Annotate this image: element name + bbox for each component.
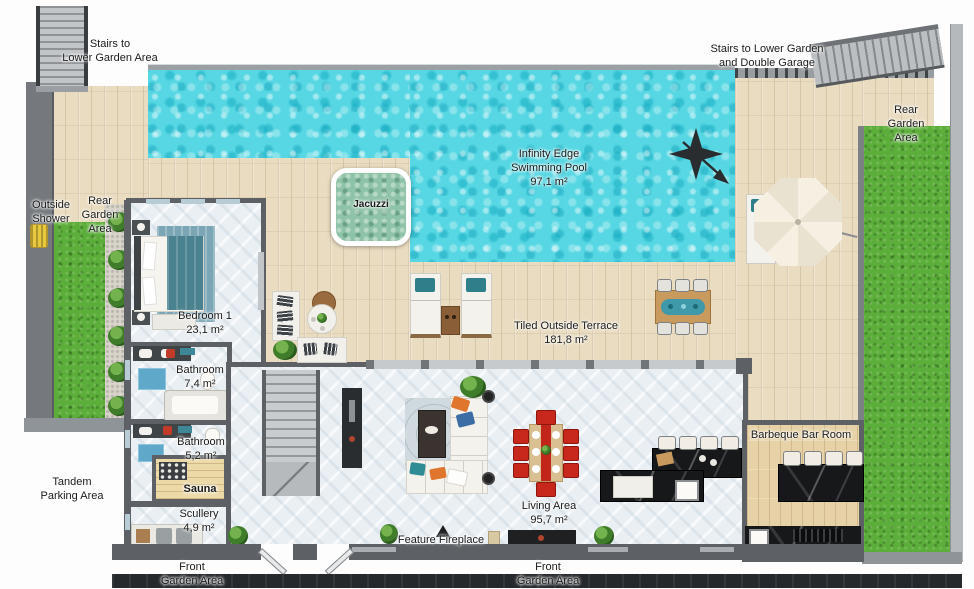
scullery-label: Scullery 4,9 m² (163, 508, 235, 536)
label-line: Rear (876, 104, 936, 118)
label-line: Rear (72, 195, 128, 209)
dish-icon (693, 304, 698, 309)
outdoor-chair (675, 279, 690, 292)
label-line: Parking Area (26, 490, 118, 504)
tray-icon (425, 426, 438, 434)
bedroom1-label: Bedroom 1 23,1 m² (169, 310, 241, 338)
dining-chair (513, 446, 529, 461)
label-line: Lower Garden Area (40, 52, 180, 66)
plate-icon (532, 448, 540, 456)
outdoor-chair (675, 322, 690, 335)
umbrella-hub (795, 219, 801, 225)
label-line: Stairs to Lower Garden (682, 43, 852, 57)
dish-icon (668, 304, 673, 309)
barbeque-counter (745, 526, 861, 546)
pot-icon (710, 459, 717, 466)
bathroom2-label: Bathroom 5,2 m² (165, 436, 237, 464)
bar-counter (778, 464, 864, 502)
label-line: Barbeque Bar Room (740, 429, 862, 443)
island-cabinet (613, 476, 653, 498)
bar-stool (804, 451, 822, 466)
compass-north-icon (655, 128, 737, 190)
parasol-umbrella-icon (754, 178, 842, 266)
label-line: and Double Garage (682, 57, 852, 71)
label-line: 7,4 m² (164, 378, 236, 392)
rear-garden-right-lawn (862, 126, 954, 560)
deck-side-table (441, 306, 460, 335)
label-line: Swimming Pool (489, 162, 609, 176)
outdoor-chair (693, 322, 708, 335)
front-window (588, 547, 628, 552)
garden-bottom-wall (24, 418, 136, 432)
striped-cushion (276, 310, 293, 323)
dining-chair (513, 463, 529, 478)
outdoor-chair (657, 279, 672, 292)
dining-chair (563, 446, 579, 461)
bed-headboard (134, 236, 141, 310)
label-line: Garden Area (876, 118, 936, 146)
bed (134, 236, 204, 312)
towel-icon (180, 348, 195, 355)
label-line: Feature Fireplace (381, 534, 501, 548)
striped-cushion (322, 342, 338, 356)
corner-pillar (736, 358, 752, 374)
cup-icon (311, 317, 316, 322)
kitchen-sink (675, 480, 699, 501)
lounger-fold (462, 300, 491, 301)
stairs-top-left-label: Stairs to Lower Garden Area (40, 38, 180, 66)
plate-icon (552, 465, 560, 473)
label-line: Scullery (163, 508, 235, 522)
decor-icon (349, 436, 355, 442)
bed-blanket (167, 236, 203, 310)
fireplace-label: Feature Fireplace (381, 534, 501, 548)
tv-screen (349, 400, 355, 422)
jacuzzi-label: Jacuzzi (336, 199, 406, 212)
pot-icon (699, 455, 706, 462)
decor-icon (538, 535, 544, 541)
lounger-pillow (466, 278, 486, 292)
bedroom-window (181, 199, 205, 204)
knob-icon (452, 315, 456, 319)
outdoor-dining-table (655, 290, 711, 324)
staircase-landing (262, 462, 320, 496)
kitchen-island (600, 470, 704, 502)
label-line: Stairs to (40, 38, 180, 52)
bar-stool (825, 451, 843, 466)
coffee-table (418, 410, 446, 458)
label-line: Bedroom 1 (169, 310, 241, 324)
label-line: Front (147, 561, 237, 575)
right-boundary-wall (950, 24, 963, 562)
media-console (508, 530, 576, 545)
sink-icon (139, 349, 152, 358)
striped-cushion (276, 295, 293, 308)
label-line: Bathroom (165, 436, 237, 450)
living-label: Living Area 95,7 m² (489, 500, 609, 528)
outdoor-chair (657, 322, 672, 335)
outdoor-shower-icon (30, 224, 48, 248)
bathroom-window (125, 360, 130, 380)
stairs-left-landing (36, 86, 88, 92)
grill-icon (793, 529, 843, 542)
striped-cushion (277, 324, 294, 336)
tandem-parking-label: Tandem Parking Area (26, 476, 118, 504)
front-garden-center-label: Front Garden Area (500, 561, 596, 589)
bathtub-basin (172, 396, 218, 414)
bistro-table (307, 304, 337, 334)
plate-icon (532, 465, 540, 473)
bathroom1-label: Bathroom 7,4 m² (164, 364, 236, 392)
front-window (352, 547, 396, 552)
scullery-window (125, 514, 130, 530)
plant-icon (460, 376, 486, 398)
outdoor-sofa (297, 337, 347, 363)
label-line: Living Area (489, 500, 609, 514)
shower-mat (138, 368, 166, 390)
dining-chair (536, 482, 556, 497)
front-garden-left-label: Front Garden Area (147, 561, 237, 589)
outdoor-chair (693, 279, 708, 292)
bed-pillow (142, 276, 157, 305)
dining-table (529, 424, 563, 482)
dining-chair (563, 463, 579, 478)
interior-staircase (262, 370, 320, 464)
barbeque-label: Barbeque Bar Room (740, 429, 862, 443)
side-lamp-icon (482, 472, 495, 485)
bathroom-window (125, 430, 130, 448)
front-window (700, 547, 734, 552)
rear-garden-left-label: Rear Garden Area (72, 195, 128, 236)
plate-icon (532, 431, 540, 439)
bar-stool (700, 436, 718, 450)
bathroom1-accessory (166, 349, 175, 358)
bedroom-window (146, 199, 170, 204)
bathtub (164, 390, 228, 422)
label-line: Garden Area (500, 575, 596, 589)
plate-icon (552, 431, 560, 439)
table-plant-icon (317, 313, 327, 323)
label-line: 5,2 m² (165, 450, 237, 464)
stairs-top-right-label: Stairs to Lower Garden and Double Garage (682, 43, 852, 71)
bedroom-deck-door (258, 252, 264, 310)
outside-shower-label: Outside Shower (25, 199, 77, 227)
label-line: 181,8 m² (506, 334, 626, 348)
pool-label: Infinity Edge Swimming Pool 97,1 m² (489, 148, 609, 189)
label-line: Shower (25, 213, 77, 227)
label-line: Infinity Edge (489, 148, 609, 162)
label-line: 95,7 m² (489, 514, 609, 528)
sun-lounger (461, 273, 492, 338)
plant-icon (594, 526, 614, 546)
tv-feature-wall (342, 388, 362, 468)
bar-stool (658, 436, 676, 450)
centerpiece-icon (541, 445, 551, 455)
sauna-label: Sauna (164, 483, 236, 497)
striped-cushion (302, 342, 317, 355)
sun-lounger (410, 273, 441, 338)
bed-pillow (142, 241, 157, 270)
scullery-cabinet (136, 529, 150, 543)
nightstand (132, 220, 150, 235)
label-line: Tandem (26, 476, 118, 490)
bar-stool (679, 436, 697, 450)
nightstand (132, 310, 150, 325)
bar-stool (783, 451, 801, 466)
plant-icon (273, 340, 297, 360)
sink-icon (139, 427, 152, 435)
sauna-stove (159, 462, 187, 480)
label-line: Outside (25, 199, 77, 213)
dining-chair (513, 429, 529, 444)
label-line: Tiled Outside Terrace (506, 320, 626, 334)
cushion-teal (409, 462, 426, 476)
lamp-icon (137, 313, 145, 321)
sliding-door-track (366, 360, 744, 369)
left-boundary-wall (26, 82, 54, 424)
terrace-label: Tiled Outside Terrace 181,8 m² (506, 320, 626, 348)
knob-icon (445, 315, 449, 319)
plate-icon (552, 448, 560, 456)
lounger-fold (411, 300, 440, 301)
dining-chair (563, 429, 579, 444)
label-line: Sauna (164, 483, 236, 497)
label-line: Front (500, 561, 596, 575)
label-line: Garden Area (147, 575, 237, 589)
cup-icon (320, 326, 325, 331)
label-line: 4,9 m² (163, 522, 235, 536)
outdoor-sofa (272, 291, 300, 341)
front-right-wall (862, 552, 962, 564)
label-line: 97,1 m² (489, 176, 609, 190)
dish-icon (681, 304, 686, 309)
label-line: Garden Area (72, 209, 128, 237)
bedroom-window (216, 199, 240, 204)
rear-garden-right-label: Rear Garden Area (876, 104, 936, 145)
towel-icon (178, 426, 192, 433)
cutting-board-icon (656, 451, 674, 466)
jacuzzi: Jacuzzi (331, 168, 411, 246)
label-line: 23,1 m² (169, 324, 241, 338)
floor-plan: Jacuzzi (0, 0, 974, 588)
bar-stool (846, 451, 863, 466)
lounger-pillow (415, 278, 435, 292)
lamp-icon (137, 223, 145, 231)
bathroom2-accessory (163, 426, 172, 435)
label-line: Bathroom (164, 364, 236, 378)
dining-chair (536, 410, 556, 425)
bar-stool (721, 436, 739, 450)
